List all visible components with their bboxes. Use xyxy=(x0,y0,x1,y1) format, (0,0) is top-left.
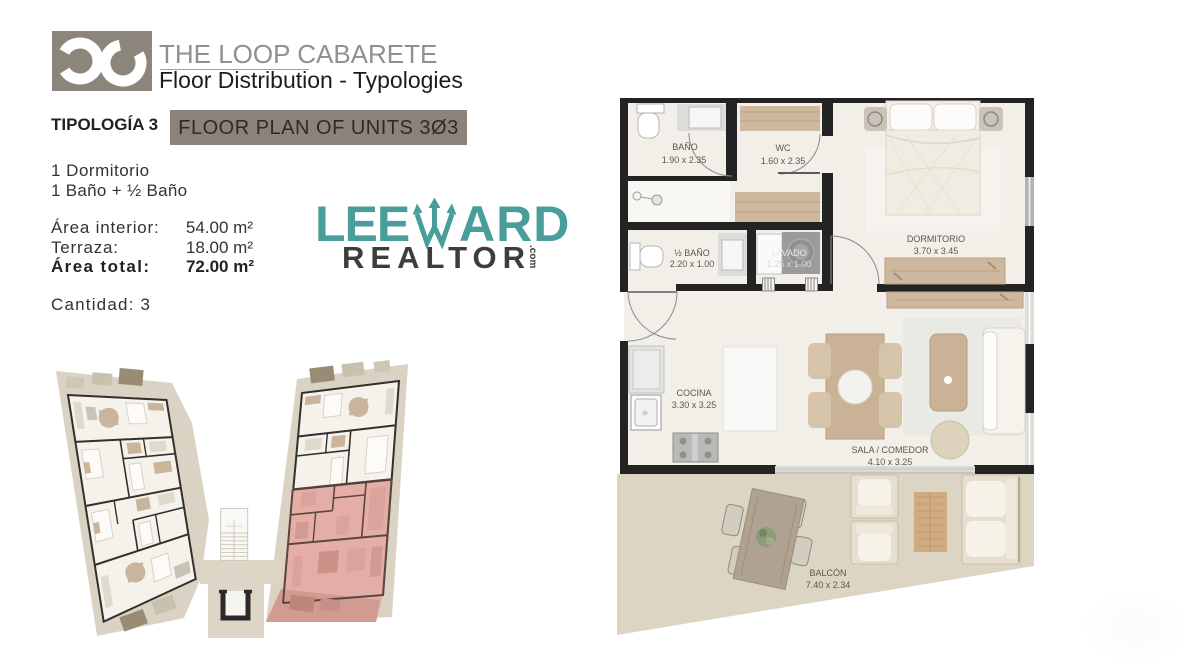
svg-text:BALCÓN: BALCÓN xyxy=(809,568,846,578)
svg-text:COCINA: COCINA xyxy=(676,388,711,398)
svg-text:SALA / COMEDOR: SALA / COMEDOR xyxy=(851,445,929,455)
svg-text:1.90 x 2.35: 1.90 x 2.35 xyxy=(662,155,707,165)
svg-text:WC: WC xyxy=(776,143,791,153)
svg-text:3.70 x 3.45: 3.70 x 3.45 xyxy=(914,246,959,256)
svg-text:7.40 x 2.34: 7.40 x 2.34 xyxy=(806,580,851,590)
svg-text:½ BAÑO: ½ BAÑO xyxy=(674,248,710,258)
svg-text:LAVADO: LAVADO xyxy=(771,248,806,258)
svg-text:BAÑO: BAÑO xyxy=(672,142,698,152)
svg-text:1.60 x 2.35: 1.60 x 2.35 xyxy=(761,156,806,166)
svg-text:3.30 x 3.25: 3.30 x 3.25 xyxy=(672,400,717,410)
svg-text:2.20 x 1.00: 2.20 x 1.00 xyxy=(670,259,715,269)
svg-text:1.25 x 1.00: 1.25 x 1.00 xyxy=(767,259,812,269)
svg-text:4.10 x 3.25: 4.10 x 3.25 xyxy=(868,457,913,467)
svg-text:DORMITORIO: DORMITORIO xyxy=(907,234,965,244)
